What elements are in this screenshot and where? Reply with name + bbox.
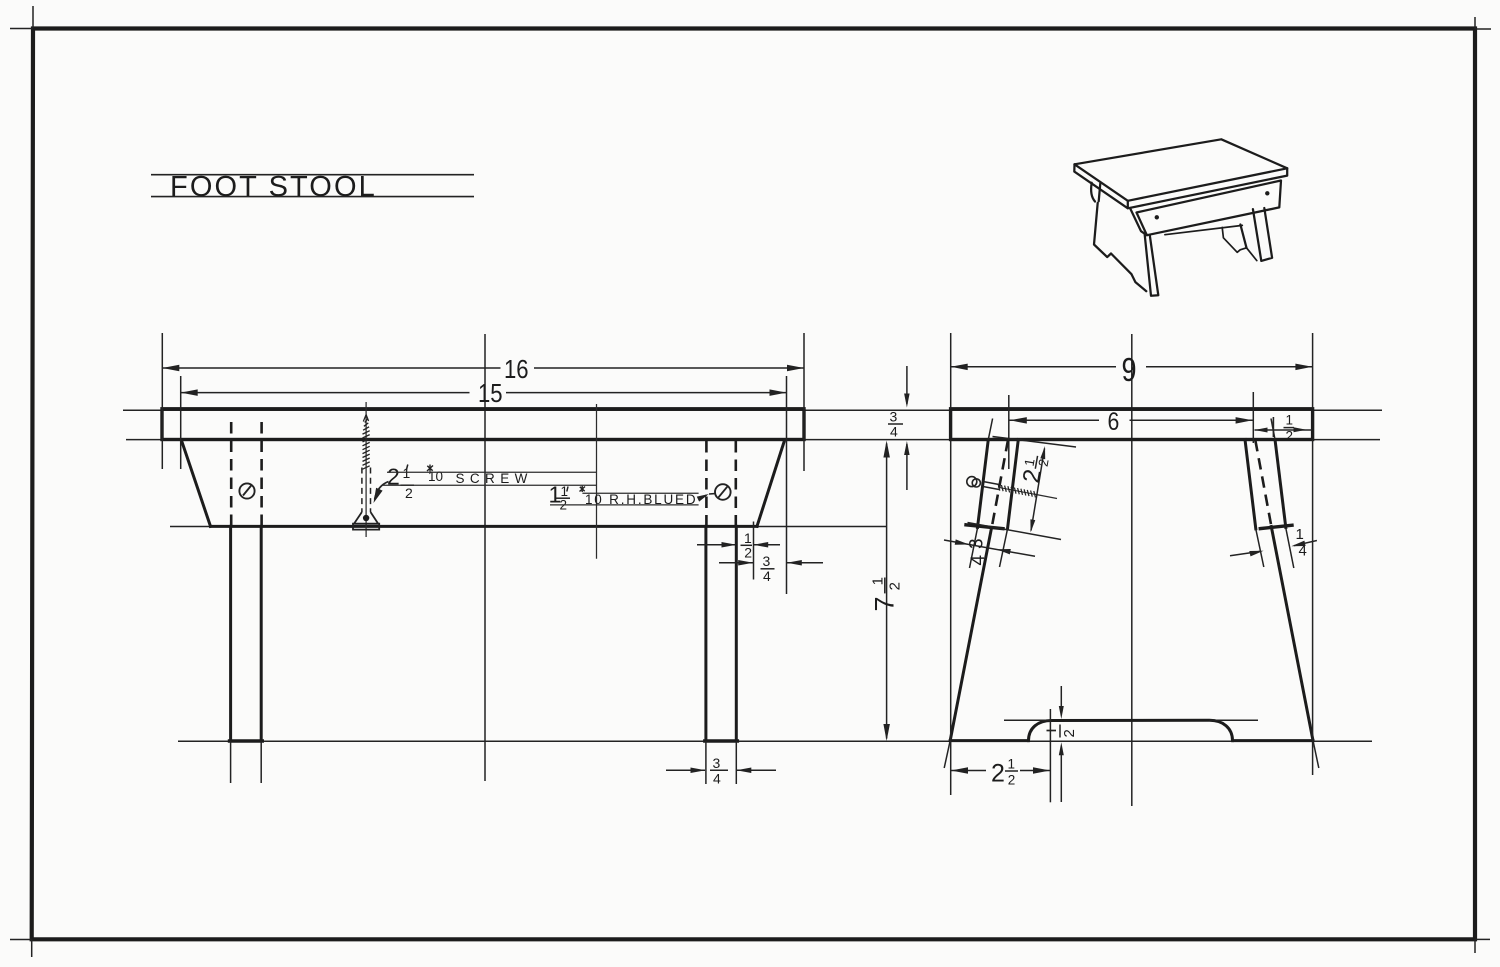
svg-text:4: 4	[1299, 543, 1307, 560]
svg-text:4: 4	[890, 424, 898, 440]
svg-text:9: 9	[1122, 352, 1137, 388]
svg-text:3: 3	[763, 553, 771, 569]
svg-text:3: 3	[967, 538, 988, 549]
svg-text:3: 3	[890, 409, 898, 425]
svg-text:15: 15	[478, 380, 503, 409]
svg-text:7: 7	[870, 596, 900, 611]
svg-text:1: 1	[1008, 757, 1016, 772]
svg-text:2: 2	[991, 760, 1005, 788]
svg-text:4: 4	[763, 568, 771, 584]
svg-text:FOOT STOOL: FOOT STOOL	[170, 171, 377, 203]
svg-text:2: 2	[744, 545, 752, 561]
svg-text:6: 6	[1108, 407, 1120, 435]
svg-text:4: 4	[968, 555, 989, 566]
svg-text:2: 2	[887, 582, 904, 590]
svg-text:3: 3	[713, 755, 721, 771]
svg-text:2: 2	[1061, 729, 1078, 737]
svg-text:10: 10	[428, 469, 443, 484]
svg-text:2: 2	[1018, 467, 1047, 485]
svg-text:2: 2	[1036, 458, 1052, 468]
svg-text:SCREW: SCREW	[456, 471, 533, 486]
svg-text:16: 16	[504, 355, 529, 384]
svg-text:2: 2	[1286, 429, 1294, 444]
svg-text:1: 1	[870, 577, 887, 585]
svg-text:2: 2	[405, 485, 413, 501]
svg-text:1: 1	[744, 530, 752, 546]
svg-text:1: 1	[1286, 413, 1294, 428]
svg-text:4: 4	[713, 771, 721, 787]
svg-text:1: 1	[1296, 526, 1304, 543]
svg-text:2: 2	[1008, 773, 1016, 788]
